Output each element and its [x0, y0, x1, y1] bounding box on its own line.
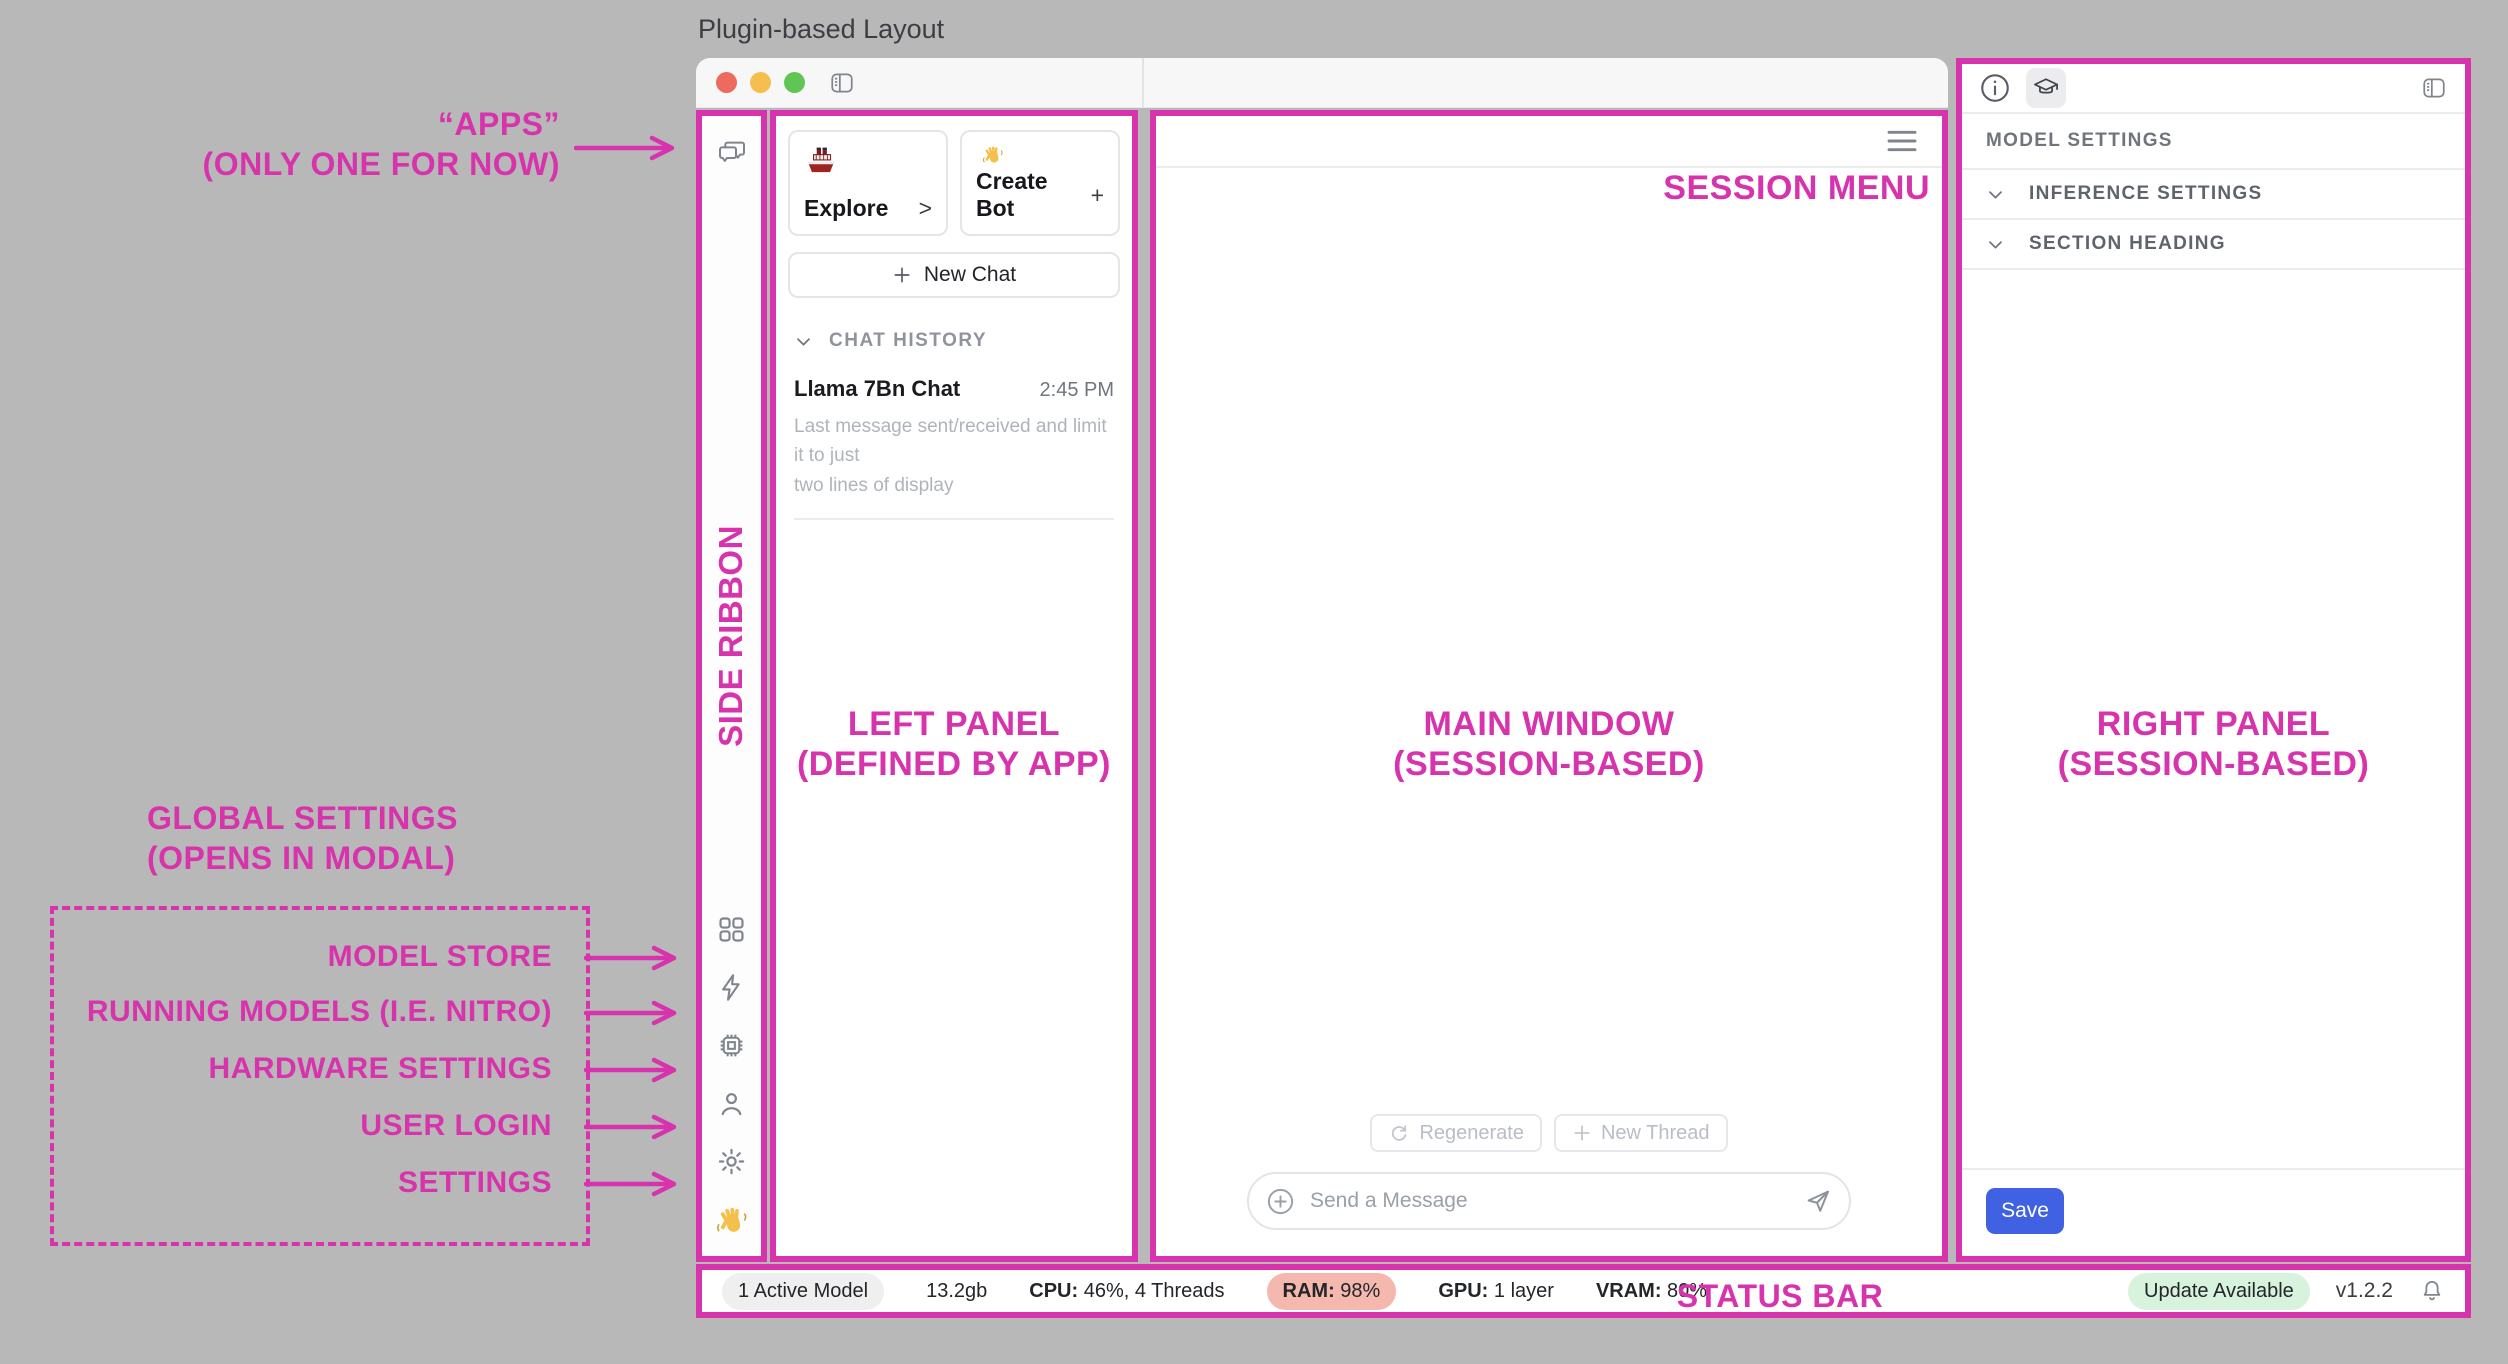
lightning-icon: [716, 972, 747, 1003]
new-thread-button[interactable]: New Thread: [1554, 1114, 1728, 1152]
user-login-annotation: USER LOGIN: [60, 1109, 552, 1143]
design-canvas: Plugin-based Layout: [0, 0, 2508, 1364]
page-title: Plugin-based Layout: [698, 14, 944, 45]
section-heading-label: SECTION HEADING: [2029, 233, 2226, 255]
ram-usage-badge: RAM: 98%: [1267, 1273, 1397, 1310]
create-bot-shortcut-button[interactable]: [714, 1204, 750, 1240]
traffic-lights: [716, 72, 805, 93]
section-heading-section[interactable]: SECTION HEADING: [1962, 220, 2465, 270]
chat-app-button[interactable]: [716, 136, 748, 168]
regenerate-label: Regenerate: [1419, 1122, 1524, 1145]
sidebar-toggle-icon[interactable]: [2419, 75, 2449, 101]
hardware-settings-arrow: [584, 1055, 688, 1085]
create-bot-card[interactable]: Create Bot +: [960, 130, 1120, 236]
close-window-button[interactable]: [716, 72, 737, 93]
status-bar: 1 Active Model 13.2gb CPU: 46%, 4 Thread…: [696, 1264, 2471, 1318]
model-settings-heading: MODEL SETTINGS: [1986, 130, 2173, 152]
explore-card-label: Explore: [804, 195, 888, 222]
user-login-button[interactable]: [716, 1088, 747, 1119]
active-model-badge: 1 Active Model: [722, 1273, 884, 1310]
running-models-arrow: [584, 998, 688, 1028]
inference-settings-section[interactable]: INFERENCE SETTINGS: [1962, 170, 2465, 220]
message-input[interactable]: [1310, 1189, 1789, 1213]
apps-arrow: [574, 133, 686, 163]
zoom-window-button[interactable]: [784, 72, 805, 93]
plus-icon: [892, 265, 912, 285]
message-bar: [1247, 1172, 1851, 1230]
regenerate-button[interactable]: Regenerate: [1370, 1114, 1542, 1152]
user-login-arrow: [584, 1112, 688, 1142]
chat-item-time: 2:45 PM: [1040, 379, 1114, 402]
inference-settings-label: INFERENCE SETTINGS: [2029, 183, 2262, 205]
side-ribbon: [696, 110, 767, 1262]
explore-card[interactable]: Explore >: [788, 130, 948, 236]
global-settings-annotation: GLOBAL SETTINGS (OPENS IN MODAL): [147, 798, 458, 878]
list-divider: [794, 518, 1114, 520]
left-panel: Explore >: [770, 110, 1138, 1262]
grid-icon: [716, 914, 747, 945]
new-chat-label: New Chat: [924, 263, 1016, 287]
chat-item-preview: Last message sent/received and limit it …: [794, 412, 1114, 500]
global-settings-group-box: [50, 906, 590, 1246]
chevron-down-icon: [1986, 185, 2005, 204]
model-store-button[interactable]: [716, 914, 747, 945]
chip-icon: [716, 1030, 747, 1061]
chevron-down-icon: [1986, 235, 2005, 254]
chat-history-label: CHAT HISTORY: [829, 330, 987, 352]
explore-card-chevron: >: [919, 195, 932, 222]
create-bot-card-plus: +: [1091, 182, 1104, 209]
cpu-usage: CPU: 46%, 4 Threads: [1029, 1280, 1224, 1303]
plus-icon: [1572, 1123, 1592, 1143]
settings-annotation: SETTINGS: [60, 1166, 552, 1200]
sidebar-toggle-icon[interactable]: [827, 70, 857, 96]
hamburger-menu-icon[interactable]: [1884, 128, 1920, 154]
right-panel-header: [1962, 64, 2465, 114]
info-icon[interactable]: [1978, 71, 2012, 105]
chat-item-title: Llama 7Bn Chat: [794, 376, 960, 402]
app-version: v1.2.2: [2336, 1279, 2393, 1303]
waving-hand-icon: [976, 144, 1010, 168]
window-titlebar: [696, 58, 1948, 108]
right-panel: MODEL SETTINGS INFERENCE SETTINGS SECTIO…: [1956, 58, 2471, 1262]
graduation-cap-icon: [2032, 74, 2060, 102]
chat-history-header[interactable]: CHAT HISTORY: [788, 330, 1120, 352]
chevron-down-icon: [794, 332, 813, 351]
chat-history-item[interactable]: Llama 7Bn Chat 2:45 PM Last message sent…: [788, 376, 1120, 520]
save-button[interactable]: Save: [1986, 1188, 2064, 1234]
refresh-icon: [1388, 1122, 1410, 1144]
hardware-settings-button[interactable]: [716, 1030, 747, 1061]
new-chat-button[interactable]: New Chat: [788, 252, 1120, 298]
attach-plus-icon[interactable]: [1265, 1186, 1296, 1217]
hardware-settings-annotation: HARDWARE SETTINGS: [60, 1052, 552, 1086]
main-window: Regenerate New Thread: [1150, 110, 1948, 1262]
model-store-annotation: MODEL STORE: [60, 940, 552, 974]
settings-button[interactable]: [716, 1146, 747, 1177]
gpu-usage: GPU: 1 layer: [1438, 1280, 1554, 1303]
send-icon[interactable]: [1803, 1186, 1833, 1216]
model-settings-tab[interactable]: [2026, 68, 2066, 108]
vram-usage: VRAM: 80%: [1596, 1280, 1707, 1303]
settings-arrow: [584, 1169, 688, 1199]
create-bot-card-label: Create Bot: [976, 168, 1091, 222]
user-icon: [716, 1088, 747, 1119]
memory-usage: 13.2gb: [926, 1280, 987, 1303]
ship-icon: [804, 144, 838, 178]
chat-bubbles-icon: [716, 136, 748, 168]
running-models-annotation: RUNNING MODELS (I.E. NITRO): [60, 995, 552, 1029]
main-window-header: [1156, 116, 1942, 168]
model-store-arrow: [584, 943, 688, 973]
waving-hand-icon: [714, 1204, 750, 1240]
new-thread-label: New Thread: [1601, 1122, 1710, 1145]
minimize-window-button[interactable]: [750, 72, 771, 93]
running-models-button[interactable]: [716, 972, 747, 1003]
update-available-badge[interactable]: Update Available: [2128, 1273, 2310, 1310]
bell-icon[interactable]: [2419, 1278, 2445, 1304]
apps-annotation: “APPS” (ONLY ONE FOR NOW): [140, 104, 560, 184]
titlebar-divider: [1142, 58, 1144, 107]
gear-icon: [716, 1146, 747, 1177]
